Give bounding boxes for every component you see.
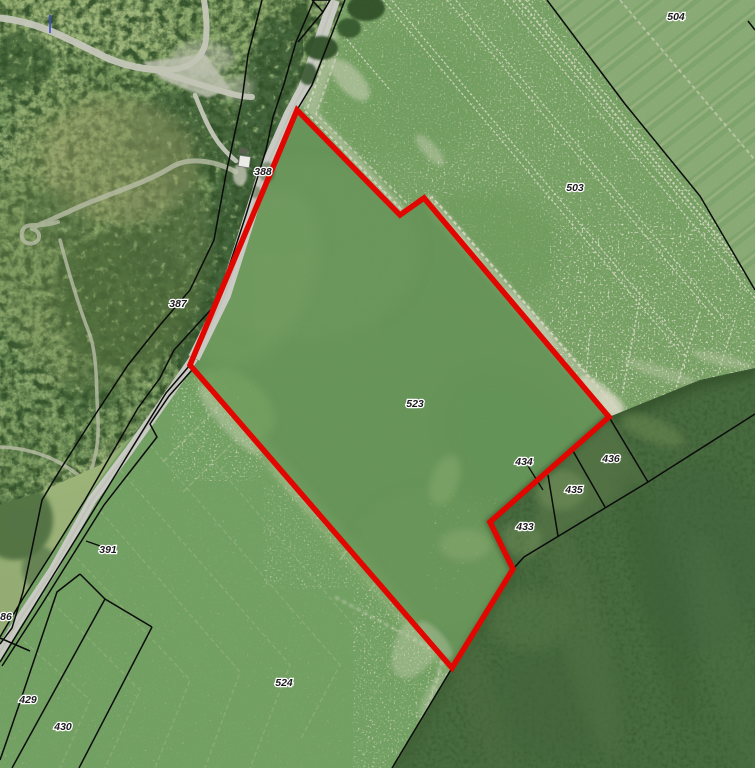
- svg-text:435: 435: [564, 484, 583, 496]
- svg-text:429: 429: [18, 694, 37, 706]
- svg-text:430: 430: [53, 721, 72, 733]
- svg-text:387: 387: [169, 298, 188, 310]
- svg-text:388: 388: [254, 166, 272, 178]
- svg-text:524: 524: [275, 677, 293, 689]
- svg-text:503: 503: [566, 182, 584, 194]
- svg-text:523: 523: [406, 398, 424, 410]
- svg-text:434: 434: [514, 456, 533, 468]
- svg-text:436: 436: [601, 453, 620, 465]
- svg-text:391: 391: [99, 544, 117, 556]
- svg-text:504: 504: [667, 11, 685, 23]
- svg-text:86: 86: [0, 611, 12, 623]
- svg-text:433: 433: [515, 521, 534, 533]
